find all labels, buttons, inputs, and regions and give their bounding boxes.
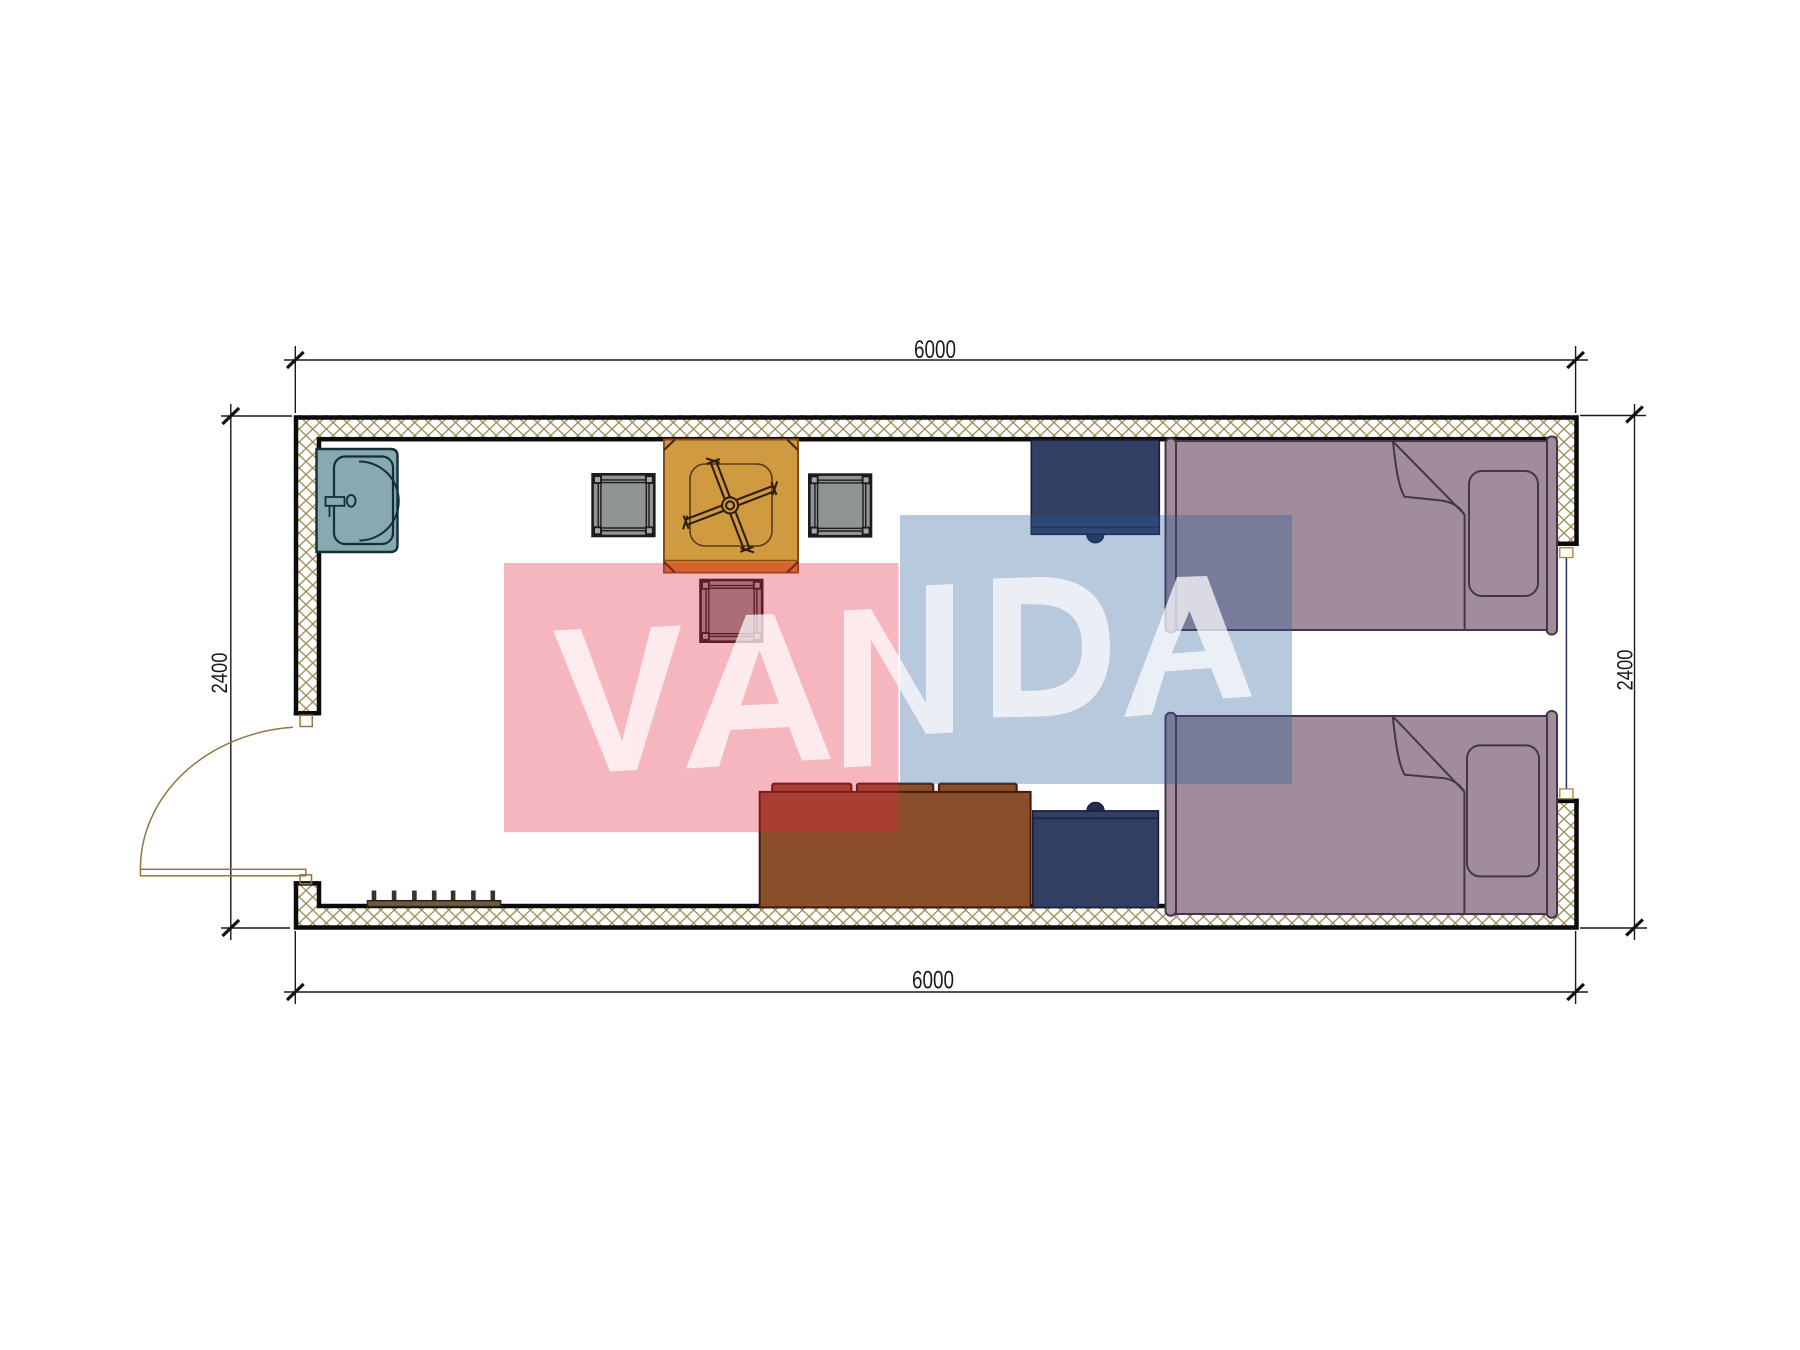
svg-text:2400: 2400 [207,653,232,694]
svg-text:6000: 6000 [912,967,954,995]
svg-text:2400: 2400 [1613,650,1638,691]
svg-text:6000: 6000 [914,336,956,364]
